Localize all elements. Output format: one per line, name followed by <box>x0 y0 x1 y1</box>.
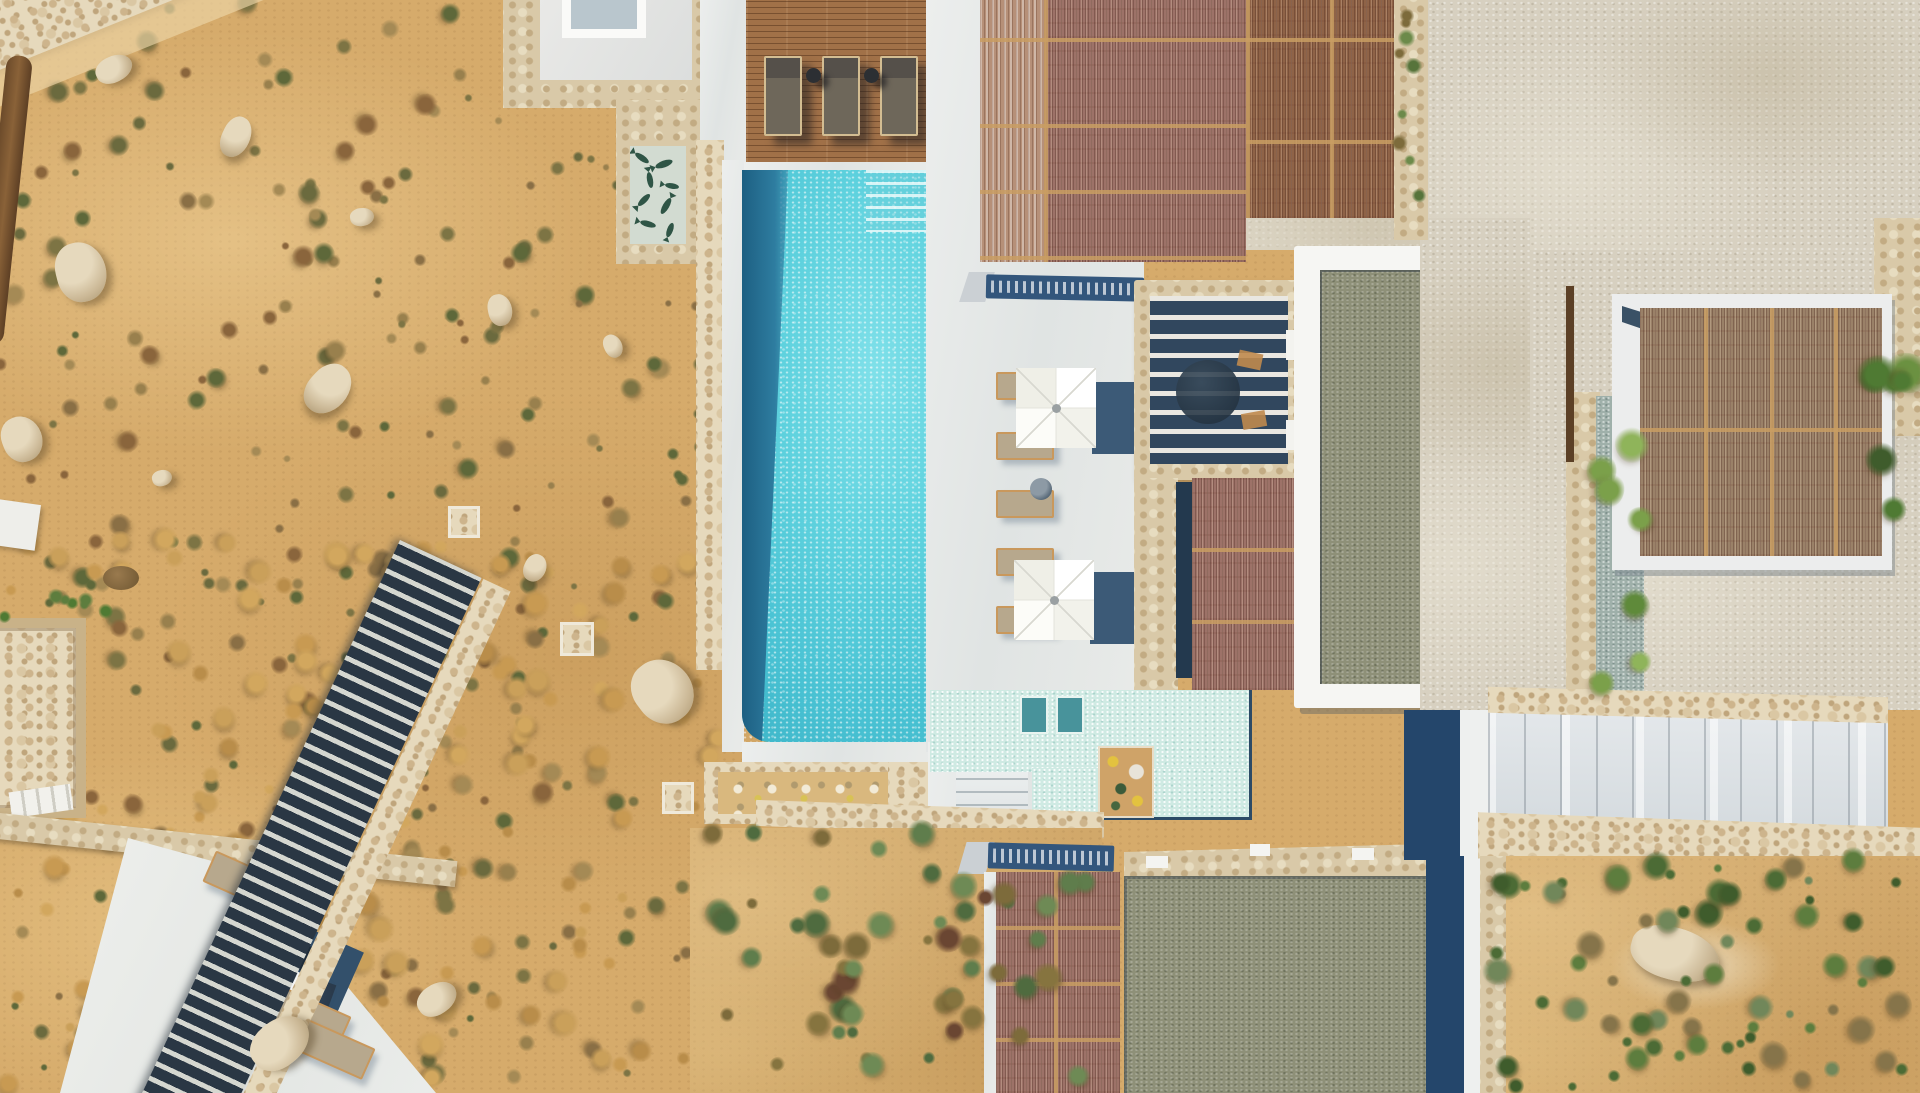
center-garden-bushes-tuft <box>742 820 765 845</box>
bottom-right-garden-tuft <box>1824 1001 1841 1019</box>
center-garden-bushes-tuft <box>922 934 934 948</box>
edge-palms-tuft <box>1879 494 1908 527</box>
center-garden-bushes-tuft <box>901 814 942 853</box>
agave-strip-tuft <box>1625 506 1656 533</box>
bottom-right-garden-tuft <box>1816 949 1853 984</box>
stone-path-plants-tuft <box>1388 130 1411 154</box>
bottom-right-garden-tuft <box>1741 912 1767 939</box>
bottom-right-garden-tuft <box>1835 841 1871 879</box>
bottom-right-garden-tuft <box>1635 909 1656 932</box>
bottom-right-garden-tuft <box>1698 957 1729 990</box>
bottom-right-garden-tuft <box>1601 863 1634 892</box>
center-garden-bushes-tuft <box>863 910 898 940</box>
center-garden-bushes-tuft <box>808 882 835 907</box>
bottom-right-garden-tuft <box>1711 862 1724 875</box>
bottom-right-garden-tuft <box>1764 865 1789 893</box>
center-garden-bushes-tuft <box>918 858 946 888</box>
bottom-right-garden-tuft <box>1889 874 1905 890</box>
vegetation-top-layer <box>0 0 1920 1093</box>
agave-strip-tuft <box>1625 647 1654 679</box>
bottom-right-garden-tuft <box>1716 930 1738 953</box>
bottom-right-garden-tuft <box>1855 976 1869 988</box>
center-garden-bushes-tuft <box>830 1025 848 1040</box>
stone-path-plants-tuft <box>1392 47 1407 60</box>
center-garden-bushes-tuft <box>744 897 760 911</box>
center-garden-bushes-tuft <box>986 959 1011 986</box>
bottom-right-garden-tuft <box>1823 1059 1842 1080</box>
stone-path-plants-tuft <box>1402 56 1425 77</box>
bottom-right-garden-tuft <box>1841 1009 1881 1051</box>
bottom-right-garden-tuft <box>1605 974 1622 989</box>
center-garden-bushes-tuft <box>962 956 983 980</box>
center-garden-bushes-tuft <box>868 837 890 862</box>
bottom-right-garden-tuft <box>1532 992 1553 1012</box>
bottom-right-garden-tuft <box>1803 874 1815 887</box>
bottom-right-garden-tuft <box>1671 1047 1687 1064</box>
center-garden-bushes-tuft <box>1008 1022 1033 1049</box>
center-garden-bushes-tuft <box>699 819 725 848</box>
stone-path-plants-tuft <box>1397 27 1417 49</box>
agave-strip-tuft <box>1585 665 1617 701</box>
bottom-right-garden-tuft <box>1566 1079 1580 1093</box>
bottom-right-garden-tuft <box>1752 1034 1795 1076</box>
center-garden-bushes-tuft <box>1028 928 1048 951</box>
center-garden-bushes-tuft <box>1062 1061 1095 1092</box>
stone-path-plants-tuft <box>1402 152 1418 167</box>
bottom-right-garden-tuft <box>1880 985 1916 1024</box>
bottom-right-garden-tuft <box>1785 1009 1795 1020</box>
bottom-right-garden-tuft <box>1801 1020 1819 1037</box>
aerial-villa-photo <box>0 0 1920 1093</box>
courtyard-greens-tuft <box>97 602 115 622</box>
center-garden-bushes-tuft <box>767 1054 789 1075</box>
agave-strip-tuft <box>1613 582 1656 626</box>
bottom-right-garden-tuft <box>1558 994 1593 1025</box>
center-garden-bushes-tuft <box>1033 890 1061 921</box>
bottom-right-garden-tuft <box>1738 1058 1759 1080</box>
bottom-right-garden-tuft <box>1635 845 1679 888</box>
courtyard-greens-tuft <box>74 589 97 611</box>
bottom-right-garden-tuft <box>1719 1038 1736 1057</box>
center-garden-bushes-tuft <box>738 943 766 973</box>
courtyard-greens-tuft <box>0 608 14 626</box>
bottom-right-garden-tuft <box>1837 907 1869 938</box>
bottom-right-garden-tuft <box>1788 1067 1816 1093</box>
edge-palms-tuft <box>1889 369 1916 392</box>
bottom-right-garden-tuft <box>1742 988 1780 1027</box>
agave-strip-tuft <box>1609 420 1655 469</box>
center-garden-bushes-tuft <box>717 1005 736 1025</box>
stone-path-plants-tuft <box>1408 186 1428 205</box>
center-garden-bushes-tuft <box>920 1049 937 1067</box>
bottom-right-garden-tuft <box>1598 1014 1623 1035</box>
center-garden-bushes-tuft <box>807 823 837 853</box>
stone-path-plants-tuft <box>1394 106 1410 122</box>
bottom-right-garden-tuft <box>1605 1068 1622 1084</box>
stone-path-plants-tuft <box>1400 17 1412 30</box>
edge-palms-tuft <box>1860 436 1903 482</box>
